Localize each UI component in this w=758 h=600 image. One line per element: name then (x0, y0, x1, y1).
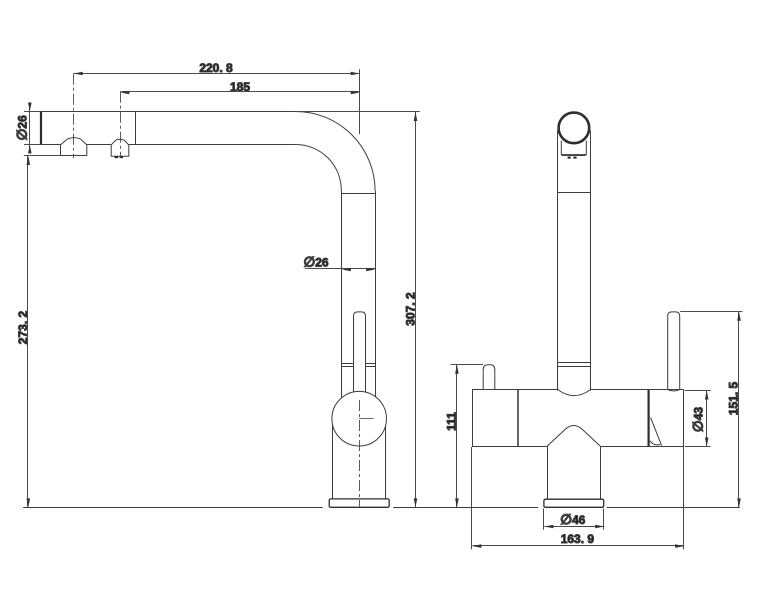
svg-text:220. 8: 220. 8 (199, 61, 233, 75)
svg-text:273. 2: 273. 2 (16, 310, 30, 344)
svg-text:307. 2: 307. 2 (403, 292, 417, 326)
svg-text:∅46: ∅46 (560, 512, 585, 527)
svg-text:∅26: ∅26 (303, 255, 328, 270)
svg-text:151. 5: 151. 5 (726, 381, 740, 415)
svg-text:∅26: ∅26 (15, 115, 30, 140)
svg-text:163. 9: 163. 9 (561, 532, 595, 546)
svg-text:185: 185 (230, 80, 250, 94)
svg-text:111: 111 (444, 412, 458, 431)
svg-text:∅43: ∅43 (690, 407, 705, 432)
